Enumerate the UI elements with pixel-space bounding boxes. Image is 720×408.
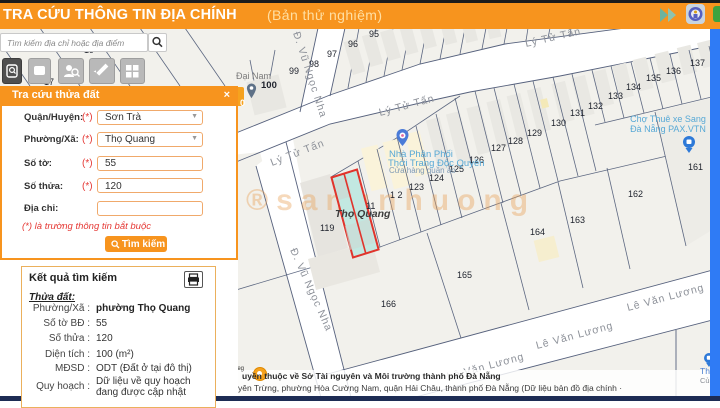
svg-text:99: 99 (289, 66, 299, 76)
svg-text:119: 119 (320, 223, 334, 233)
svg-text:129: 129 (527, 128, 542, 138)
svg-text:®sangnhuong: ®sangnhuong (246, 184, 536, 217)
svg-text:128: 128 (508, 136, 523, 146)
svg-text:100: 100 (261, 80, 277, 91)
svg-text:131: 131 (570, 108, 585, 118)
svg-text:162: 162 (628, 189, 643, 199)
svg-text:166: 166 (381, 299, 396, 309)
svg-text:Chợ Thuê xe Sang: Chợ Thuê xe Sang (630, 114, 706, 124)
svg-text:Cửa hàng quần áo: Cửa hàng quần áo (389, 166, 456, 175)
svg-text:134: 134 (626, 82, 641, 92)
svg-text:165: 165 (457, 270, 472, 280)
svg-text:1 2: 1 2 (390, 190, 403, 200)
svg-text:136: 136 (666, 66, 681, 76)
svg-text:0: 0 (240, 98, 245, 108)
svg-text:Đà Nẵng PAX.VTN: Đà Nẵng PAX.VTN (630, 124, 706, 134)
svg-text:96: 96 (348, 39, 358, 49)
svg-text:130: 130 (551, 118, 566, 128)
svg-text:97: 97 (327, 49, 337, 59)
svg-text:127: 127 (491, 143, 506, 153)
svg-text:Thọ Quang: Thọ Quang (335, 208, 391, 220)
svg-text:137: 137 (690, 58, 705, 68)
svg-text:164: 164 (530, 227, 545, 237)
svg-text:133: 133 (608, 91, 623, 101)
svg-text:95: 95 (369, 29, 379, 39)
svg-text:132: 132 (588, 101, 603, 111)
svg-text:135: 135 (646, 73, 661, 83)
svg-text:161: 161 (688, 162, 703, 172)
svg-text:163: 163 (570, 215, 585, 225)
svg-text:123: 123 (409, 182, 424, 192)
